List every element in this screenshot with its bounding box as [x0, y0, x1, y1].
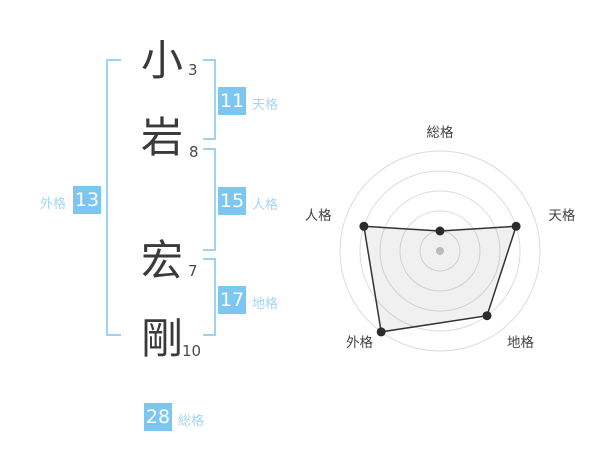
seimei-handan-result: 小 岩 宏 剛 3 8 7 10 11 天格 15 人格 17 地格 外格 13… — [0, 0, 600, 470]
radar-data-point — [377, 327, 386, 336]
name-character-1: 小 — [138, 37, 186, 85]
radar-axis-label: 天格 — [548, 208, 575, 224]
name-character-4: 剛 — [138, 315, 186, 363]
tenkaku-value-badge: 11 — [218, 87, 246, 115]
radar-data-point — [483, 311, 492, 320]
radar-data-point — [512, 222, 521, 231]
jinkaku-label: 人格 — [252, 194, 278, 213]
radar-data-point — [359, 222, 368, 231]
stroke-count-3: 7 — [188, 262, 210, 280]
jinkaku-bracket — [203, 148, 216, 251]
radar-axis-label: 人格 — [305, 208, 332, 224]
radar-axis-label: 地格 — [507, 335, 535, 351]
name-character-3: 宏 — [138, 237, 186, 285]
radar-data-point — [436, 227, 445, 236]
chikaku-label: 地格 — [252, 293, 278, 312]
stroke-count-1: 3 — [188, 61, 210, 79]
radar-axis-label: 外格 — [346, 335, 373, 351]
soukaku-value-badge: 28 — [144, 403, 172, 431]
tenkaku-label: 天格 — [252, 94, 278, 113]
radar-center-dot — [436, 247, 444, 255]
soukaku-label: 総格 — [178, 410, 204, 429]
radar-data-polygon — [364, 226, 516, 332]
stroke-count-2: 8 — [189, 143, 211, 161]
gaikaku-label: 外格 — [40, 193, 66, 212]
radar-axis-label: 総格 — [427, 125, 454, 141]
fortune-radar-chart: 総格天格地格外格人格 — [290, 101, 590, 401]
chikaku-value-badge: 17 — [218, 286, 246, 314]
jinkaku-value-badge: 15 — [218, 187, 246, 215]
gaikaku-value-badge: 13 — [73, 186, 101, 214]
name-character-2: 岩 — [138, 114, 186, 162]
stroke-count-4: 10 — [182, 342, 204, 360]
gaikaku-bracket — [106, 59, 121, 336]
